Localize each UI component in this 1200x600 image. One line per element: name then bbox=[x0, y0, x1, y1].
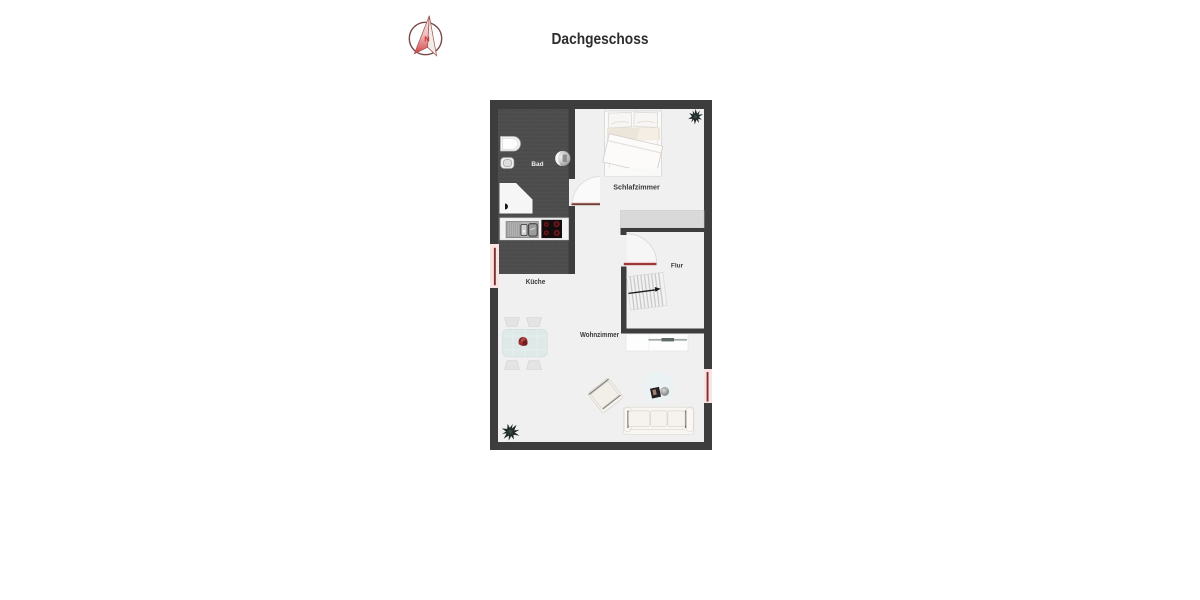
svg-text:Schlafzimmer: Schlafzimmer bbox=[613, 184, 660, 191]
svg-text:Flur: Flur bbox=[671, 263, 684, 270]
svg-text:N: N bbox=[424, 35, 429, 44]
svg-text:Dachgeschoss: Dachgeschoss bbox=[552, 31, 649, 48]
svg-text:Bad: Bad bbox=[531, 161, 543, 168]
svg-text:Wohnzimmer: Wohnzimmer bbox=[580, 330, 619, 339]
svg-text:Küche: Küche bbox=[526, 279, 546, 286]
